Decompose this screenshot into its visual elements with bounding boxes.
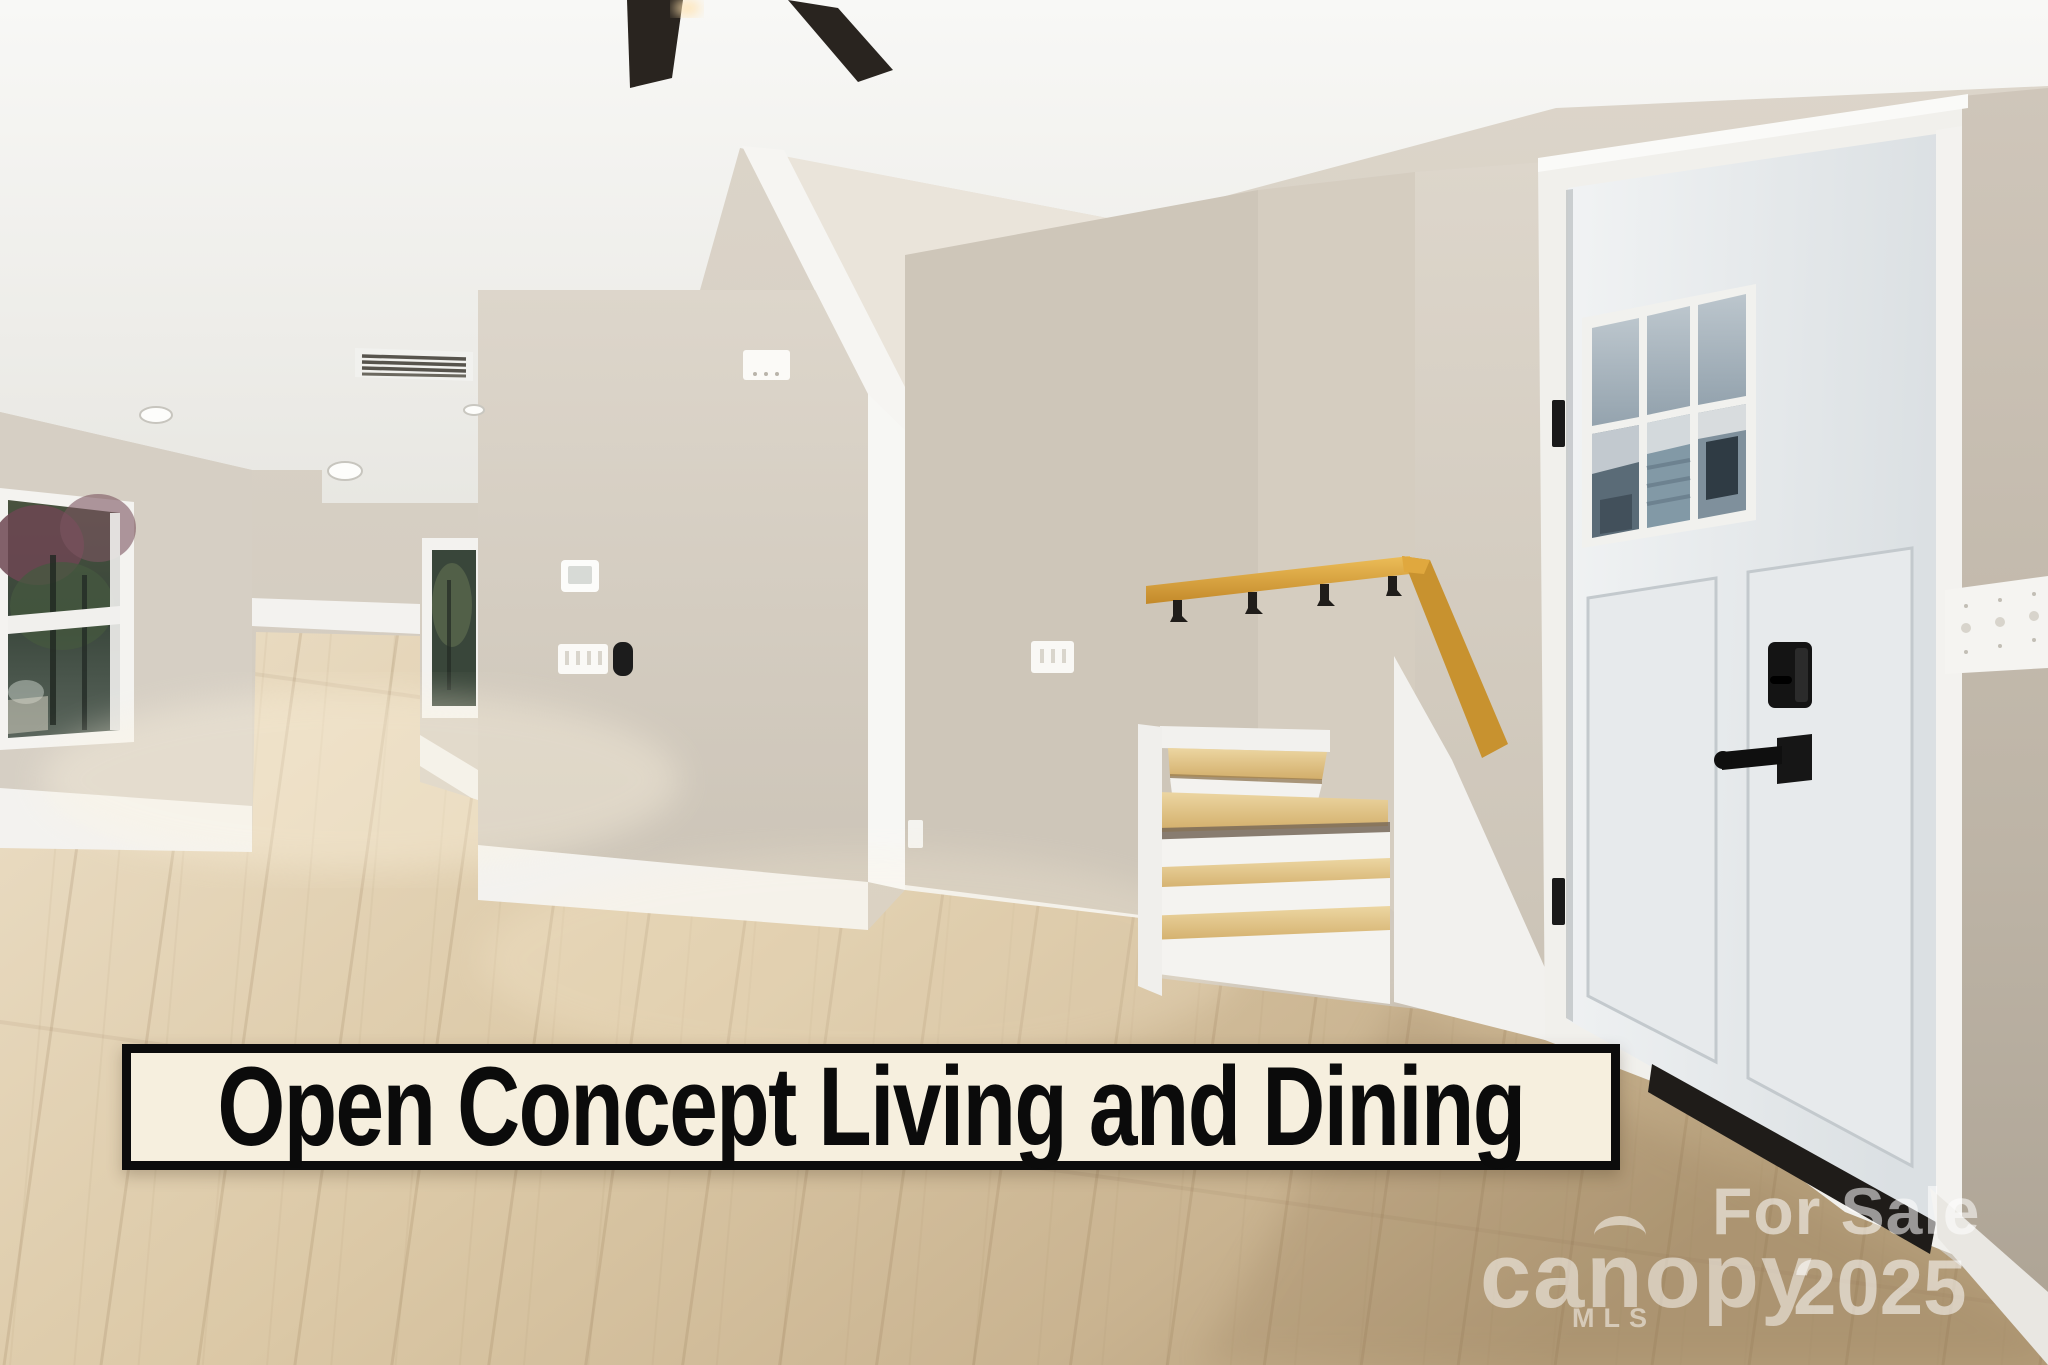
fan-light-glint xyxy=(673,0,701,16)
recessed-light-2 xyxy=(328,462,362,480)
real-estate-photo: Open Concept Living and Dining For Sale … xyxy=(0,0,2048,1365)
watermark-year: 2025 xyxy=(1793,1248,1967,1326)
caption-banner-text: Open Concept Living and Dining xyxy=(217,1051,1524,1163)
floor-sheen-center xyxy=(480,850,1240,1070)
stairwell-outlet xyxy=(908,820,923,848)
door-right-casing xyxy=(1936,126,1962,1256)
door-hinge-upper xyxy=(1552,400,1565,447)
right-wall-switch-plate xyxy=(1945,576,2048,674)
canopy-logo-arc-icon xyxy=(1594,1216,1646,1255)
door-hinge-lower xyxy=(1552,878,1565,925)
smart-dimmer-puck xyxy=(613,642,633,676)
floor-sheen-left xyxy=(40,690,680,870)
doorbell-chime-box xyxy=(743,350,790,380)
watermark-mls: MLS xyxy=(1572,1305,1656,1332)
caption-banner: Open Concept Living and Dining xyxy=(122,1044,1620,1170)
far-partial-window xyxy=(422,538,486,718)
ceiling-air-vent xyxy=(355,348,473,381)
stairwell-switch-panel xyxy=(1031,641,1074,673)
door-hinge-edge-shadow xyxy=(1566,189,1573,1022)
door-window-6-lite xyxy=(1582,284,1756,548)
left-window xyxy=(0,488,136,750)
trim-highlight xyxy=(868,394,905,890)
recessed-light-3 xyxy=(464,405,484,415)
smart-lock xyxy=(1768,642,1812,708)
thermostat xyxy=(561,560,599,592)
light-switch-panel xyxy=(558,644,608,674)
recessed-light-1 xyxy=(140,407,172,423)
